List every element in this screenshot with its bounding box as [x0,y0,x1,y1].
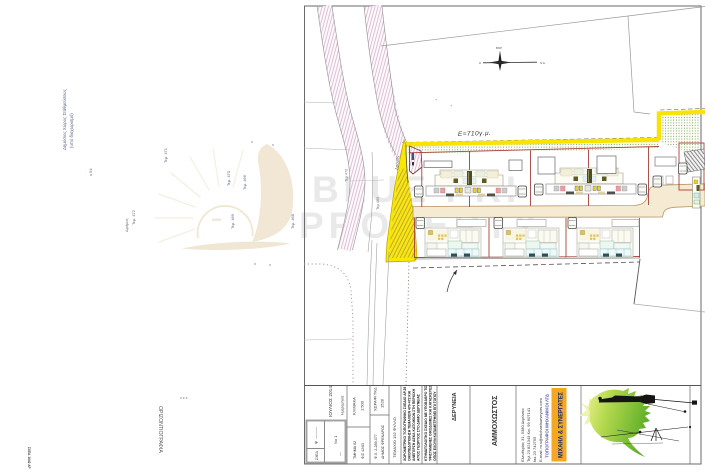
svg-text:Τεμ 470: Τεμ 470 [345,169,349,182]
svg-text:fax 23 742755: fax 23 742755 [532,436,537,462]
svg-text:E=710γ.μ.: E=710γ.μ. [458,130,492,138]
svg-text:Ν.Δ.: Ν.Δ. [540,61,546,65]
svg-text:x: x [251,140,253,144]
svg-text:ΑΓΙΟΣ ΓΕΩΡΓΙΟΣ ΣΤΟ ΔΗΜΟ ΔΕΡΥΝΕ: ΑΓΙΟΣ ΓΕΩΡΓΙΟΣ ΣΤΟ ΔΗΜΟ ΔΕΡΥΝΕΙΑΣ [417,394,421,461]
svg-text:x 94: x 94 [88,168,93,176]
svg-text:Φ.Χ. 2-289-377: Φ.Χ. 2-289-377 [374,434,378,459]
svg-text:ΧΩΡΑΦΙ ΤΚΔ: ΧΩΡΑΦΙ ΤΚΔ [373,387,378,411]
svg-text:Τεμ. 470: Τεμ. 470 [226,170,231,186]
svg-text:ΤΕΜΑΧΙΟ 152 ΦΥΛΛΟ: ΤΕΜΑΧΙΟ 152 ΦΥΛΛΟ [392,417,397,458]
svg-text:1528: 1528 [380,398,385,408]
svg-text:ΟΠΩΣ ΕΧΟΥΝ ΚΑΤΑΜΕΤΡΗΘΕΙ ΕΠΙ ΤΟ: ΟΠΩΣ ΕΧΟΥΝ ΚΑΤΑΜΕΤΡΗΘΕΙ ΕΠΙ ΤΟΠΟΥ [433,391,437,461]
svg-text:ΒΟΡ: ΒΟΡ [496,46,502,50]
svg-text:Τεμ. 468: Τεμ. 468 [290,213,295,229]
svg-text:Ελευθερίας 31, 5380 Δερύνεια: Ελευθερίας 31, 5380 Δερύνεια [520,408,525,462]
svg-text:Δρόμος: Δρόμος [124,218,129,232]
svg-text:Φ/Σ 42/63: Φ/Σ 42/63 [361,443,365,459]
svg-text:ΟΙΚΟΠΕΔΟΠΟΙΗΣΗ ΤΕΜΑΧΙΩΝ 470-47: ΟΙΚΟΠΕΔΟΠΟΙΗΣΗ ΤΕΜΑΧΙΩΝ 470-472 ΚΑΙ [408,391,412,461]
svg-text:ΚΛΙΜΑΚΑ: ΚΛΙΜΑΚΑ [352,397,357,415]
svg-text:ΑΜΜΟΧΩΣΤΟΣ: ΑΜΜΟΧΩΣΤΟΣ [492,396,499,446]
svg-text:Δρόμος: Δρόμος [394,156,400,171]
svg-text:Τεμ. 466: Τεμ. 466 [242,174,247,190]
svg-text:(υπό διαχωρισμό): (υπό διαχωρισμό) [69,113,74,148]
svg-text:ΔΗΜΟΣ ΦΡΕΝΑΡΟΣ: ΔΗΜΟΣ ΦΡΕΝΑΡΟΣ [381,424,385,459]
svg-text:ΙΟΥΛΙΟΣ 2014: ΙΟΥΛΙΟΣ 2014 [328,386,334,417]
svg-text:Τεμ 469: Τεμ 469 [376,197,380,210]
svg-text:x: x [254,262,256,266]
svg-text:Δημόσιος Χώρος Σταθμεύσεως: Δημόσιος Χώρος Σταθμεύσεως [62,89,67,150]
svg-text:ΣΧΕΔ: ΣΧΕΔ [315,450,319,460]
svg-text:E-mail: m.s@michaelsurveyors.c: E-mail: m.s@michaelsurveyors.com [538,397,543,462]
svg-text:x: x [272,143,274,147]
svg-text:ΟΡΙΖΟΝΤΙΟΓΡΑΦΙΑ: ΟΡΙΖΟΝΤΙΟΓΡΑΦΙΑ [157,406,163,453]
svg-text:1:500: 1:500 [360,400,365,411]
svg-text:Νο 1: Νο 1 [333,435,338,444]
svg-text:Ημερομηνία:: Ημερομηνία: [341,395,345,415]
svg-text:ΤΜΗΜΑ 02: ΤΜΗΜΑ 02 [353,441,357,459]
svg-text:ψ ———: ψ ——— [313,427,318,444]
svg-text:www: www [212,217,222,222]
svg-text:ΥΦΙΣΤΑΜΕΝΕΣ ΟΙΚΟΔΟΜΕΣ ΚΑΙ ΚΑΤΑ: ΥΦΙΣΤΑΜΕΝΕΣ ΟΙΚΟΔΟΜΕΣ ΚΑΙ ΚΑΤΑΣΚΕΥΕΣ [429,386,433,461]
svg-text:—: — [337,452,342,456]
svg-text:Τεμ. 472: Τεμ. 472 [131,209,136,225]
svg-text:Δ: Δ [479,61,481,65]
svg-text:Τηλ 23 821343 Κιν. 99 607141: Τηλ 23 821343 Κιν. 99 607141 [526,407,531,462]
svg-text:ΚΤΗΜΑΤΟΛΟΓΙΚΟ ΣΧΕΔΙΟ ΜΕ ΥΠΟΒΑΘ: ΚΤΗΜΑΤΟΛΟΓΙΚΟ ΣΧΕΔΙΟ ΜΕ ΥΠΟΒΑΘΡΟ ΤΙΣ [424,386,428,461]
svg-text:Τεμ. 469: Τεμ. 469 [230,213,235,229]
svg-text:ΤΟΠΟΓΡΑΦΟΙ ΜΗΧΑΝΙΚΟΙ ΛΤΔ: ΤΟΠΟΓΡΑΦΟΙ ΜΗΧΑΝΙΚΟΙ ΛΤΔ [545,393,550,458]
svg-text:x x x: x x x [180,396,188,400]
svg-text:x: x [269,263,271,267]
svg-text:ΧΩΡΟΜΕΤΡΙΚΟ ΤΟΠΟΓΡΑΦΙΚΟ ΣΧΕΔΙΟ: ΧΩΡΟΜΕΤΡΙΚΟ ΤΟΠΟΓΡΑΦΙΚΟ ΣΧΕΔΙΟ ΑΡ.25 [403,387,407,461]
svg-text:ΑΝΕΓΕΡΣΗ ΔΕΚΑ ΚΑΤΟΙΚΙΩΝ ΣΤΗ ΠΕ: ΑΝΕΓΕΡΣΗ ΔΕΚΑ ΚΑΤΟΙΚΙΩΝ ΣΤΗ ΠΕΡΙΟΧΗ [412,388,416,461]
svg-text:Τεμ. 471: Τεμ. 471 [163,147,168,163]
svg-text:ΣΧΕΔ 1042 ΑΡ: ΣΧΕΔ 1042 ΑΡ [27,447,31,470]
svg-text:ΔΕΡΥΝΕΙΑ: ΔΕΡΥΝΕΙΑ [452,392,458,421]
svg-text:ΜΙΧΑΗΛ & ΣΥΝΕΡΓΑΤΕΣ: ΜΙΧΑΗΛ & ΣΥΝΕΡΓΑΤΕΣ [558,392,565,458]
